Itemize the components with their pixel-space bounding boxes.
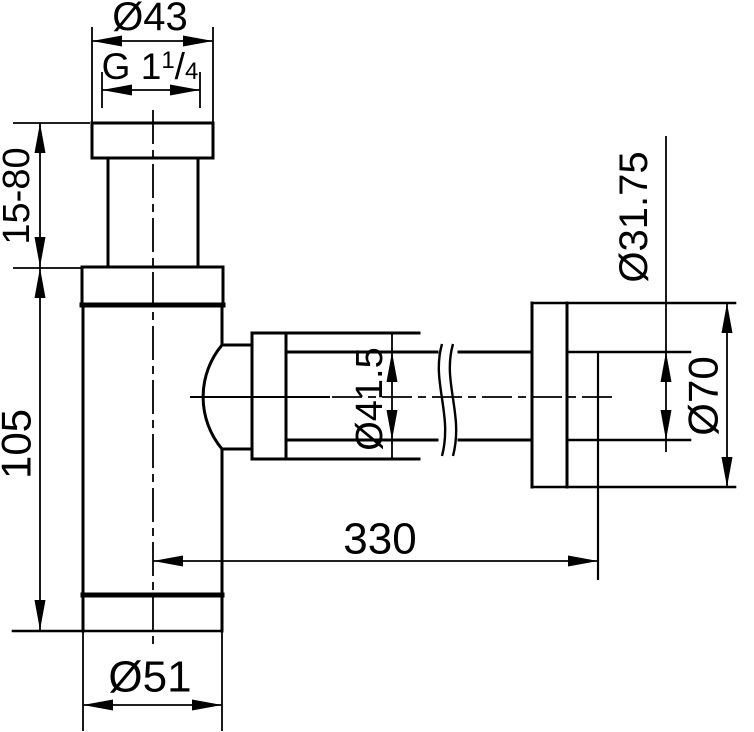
arrow-d3175-bottom bbox=[661, 410, 672, 440]
arrow-d51-right bbox=[192, 700, 222, 711]
dim-label-wall-pipe-diameter: Ø31.75 bbox=[612, 151, 656, 282]
dim-label-adjustable-height: 15-80 bbox=[0, 147, 38, 244]
arrow-d3175-top bbox=[661, 352, 672, 382]
drawing-canvas: Ø43G 11/415-80105Ø51Ø41.5330Ø31.75Ø70 bbox=[0, 0, 754, 732]
dim-label-wall-distance: 330 bbox=[343, 515, 416, 564]
dim-label-sleeve-diameter: Ø41.5 bbox=[349, 347, 391, 451]
dim-label-thread-size: G 11/4 bbox=[102, 46, 199, 87]
pipe-break-squiggle-2 bbox=[450, 344, 456, 456]
dim-label-body-diameter: Ø51 bbox=[108, 653, 191, 702]
arrow-d70-top bbox=[722, 303, 733, 333]
pipe-break-squiggle-1 bbox=[439, 344, 445, 456]
arrow-330-right bbox=[568, 556, 598, 567]
dim-label-top-flange-diameter: Ø43 bbox=[112, 0, 188, 39]
dim-label-body-height: 105 bbox=[0, 409, 40, 479]
arrow-d70-bottom bbox=[722, 457, 733, 487]
arrow-330-left bbox=[153, 556, 183, 567]
dim-label-wall-flange-diameter: Ø70 bbox=[680, 356, 727, 435]
technical-drawing: Ø43G 11/415-80105Ø51Ø41.5330Ø31.75Ø70 bbox=[0, 0, 754, 732]
arrow-105-bottom bbox=[35, 600, 46, 630]
arrow-105-top bbox=[35, 268, 46, 298]
